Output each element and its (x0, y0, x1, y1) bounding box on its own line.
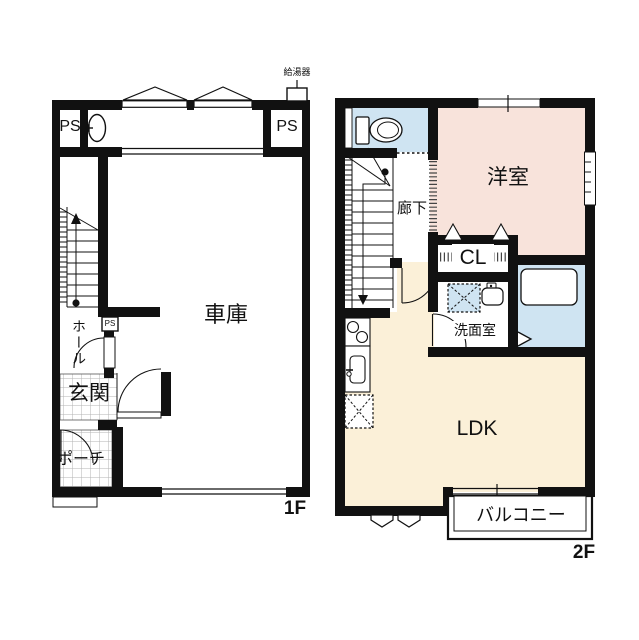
ps-right-label: PS (271, 116, 303, 138)
washing-machine-icon (448, 284, 480, 312)
shaft-sliver (345, 108, 352, 148)
water-heater-label: 給湯器 (275, 66, 319, 78)
stairs-1f (60, 207, 98, 307)
floorplan-canvas: PS PS 給湯器 ホール PS 玄関 ポーチ 車庫 1F 廊下 洋室 CL 洗… (0, 0, 639, 640)
porch-step (53, 497, 97, 507)
bathtub-icon (521, 269, 577, 305)
side-window (585, 152, 596, 205)
balcony-label: バルコニー (462, 503, 580, 527)
washbasin-icon (482, 283, 503, 305)
hall-label: ホール (70, 310, 88, 376)
washroom-label: 洗面室 (443, 321, 507, 339)
shutter-gate-icon (123, 87, 187, 100)
floor2-label: 2F (566, 541, 602, 563)
western-room-label: 洋室 (484, 165, 532, 189)
ps-small-label: PS (102, 317, 118, 331)
genkan-garage-door-arc (118, 369, 161, 412)
shutter-gate-icon (194, 87, 252, 100)
stairs-2f (345, 148, 393, 308)
refrigerator-icon (345, 395, 373, 428)
stove-icon (345, 318, 370, 346)
ps-left-label: PS (58, 116, 82, 138)
toilet-icon (356, 117, 402, 144)
floorplan-drawing (0, 0, 639, 640)
corridor-label: 廊下 (392, 199, 432, 217)
ldk-label: LDK (452, 415, 502, 441)
closet-label: CL (452, 244, 494, 270)
stairs-down-arrow (363, 176, 385, 297)
vent-marker (398, 515, 420, 527)
entrance-label: 玄関 (60, 381, 118, 405)
garage-label: 車庫 (202, 302, 250, 328)
porch-label: ポーチ (46, 450, 116, 470)
meter-icon (85, 114, 106, 142)
kitchen-sink-icon (345, 346, 370, 392)
floor1-label: 1F (278, 497, 312, 519)
water-heater-icon (287, 88, 307, 101)
vent-marker (371, 515, 393, 527)
